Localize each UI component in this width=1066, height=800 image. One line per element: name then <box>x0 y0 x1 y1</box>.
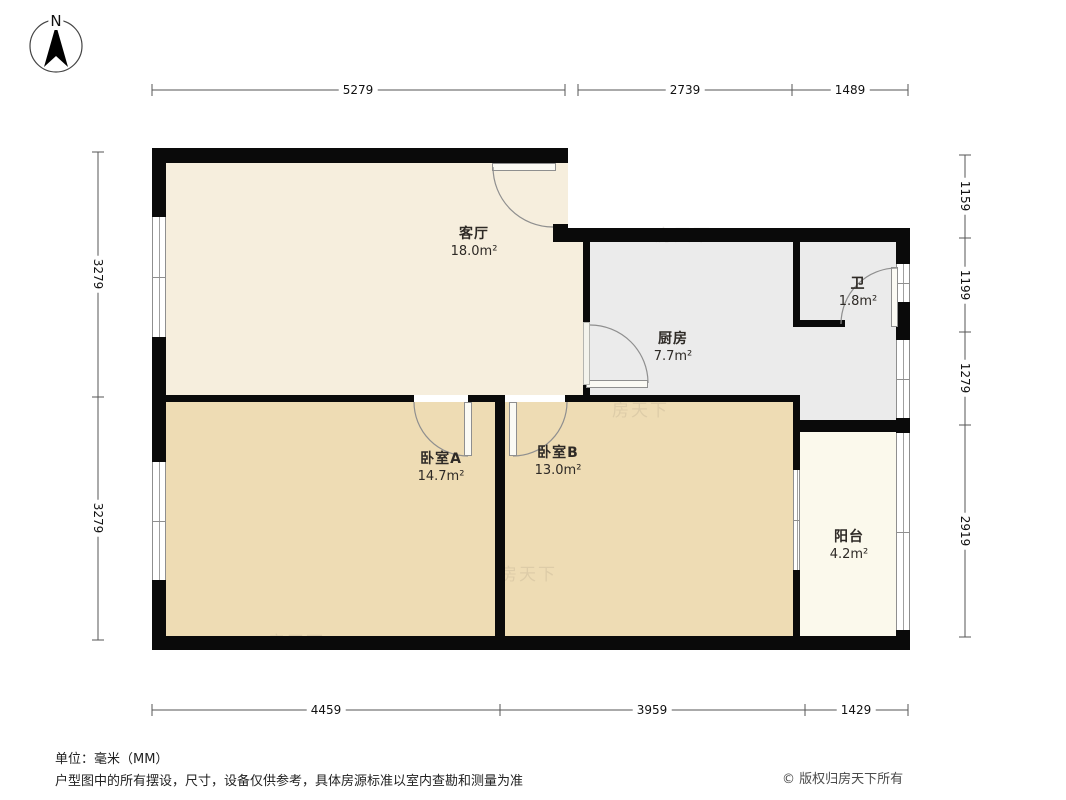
bath-door-leaf <box>891 267 898 327</box>
copyright-note: © 版权归房天下所有 <box>782 768 903 787</box>
wall-bottom <box>152 636 910 650</box>
wall-living-bedrooms-3 <box>565 395 798 402</box>
north-arrow-icon <box>44 25 68 67</box>
wall-bedroom-divider <box>495 395 505 636</box>
room-name: 卧室B <box>535 445 582 463</box>
kitchen-floor <box>590 242 896 402</box>
wall-top <box>152 148 568 163</box>
room-name: 厨房 <box>654 331 693 349</box>
room-area: 14.7m² <box>418 469 465 485</box>
room-name: 卫 <box>839 276 878 294</box>
wall-balcony-left-a <box>793 395 800 470</box>
bedroom-a-floor <box>166 402 495 636</box>
dim-right-3: 1279 <box>958 360 972 397</box>
dim-bottom-2: 3959 <box>633 703 672 717</box>
wall-balcony-left-b <box>793 570 800 637</box>
window-bedroomb-balcony <box>793 470 800 570</box>
room-area: 1.8m² <box>839 294 878 310</box>
room-area: 4.2m² <box>830 547 869 563</box>
room-name: 阳台 <box>830 529 869 547</box>
wall-balcony-top <box>793 420 910 432</box>
entrance-door-leaf <box>492 163 556 171</box>
compass-north-label: N <box>48 12 63 30</box>
bedroom-b-floor <box>505 402 793 636</box>
dim-right-2: 1199 <box>958 267 972 304</box>
room-label-bedroom-b: 卧室B 13.0m² <box>535 445 582 479</box>
window-kitchen <box>896 340 910 418</box>
room-label-kitchen: 厨房 7.7m² <box>654 331 693 365</box>
floorplan-canvas: 房天下 房天下 房天下 房天下 <box>0 0 1066 800</box>
dim-bottom-3: 1429 <box>837 703 876 717</box>
room-area: 18.0m² <box>451 244 498 260</box>
window-left-lower <box>152 462 166 580</box>
room-label-balcony: 阳台 4.2m² <box>830 529 869 563</box>
dim-right-1: 1159 <box>958 178 972 215</box>
kitchen-door-jamb <box>583 322 590 385</box>
room-label-bath: 卫 1.8m² <box>839 276 878 310</box>
room-label-bedroom-a: 卧室A 14.7m² <box>418 451 465 485</box>
dim-left-2: 3279 <box>91 500 105 537</box>
wall-living-bedrooms-1 <box>166 395 414 402</box>
kitchen-floor-lower <box>793 402 896 420</box>
wall-bath-bottom <box>793 320 845 327</box>
dim-top-2: 2739 <box>666 83 705 97</box>
room-name: 卧室A <box>418 451 465 469</box>
bedroom-a-door-leaf <box>464 402 472 456</box>
kitchen-door-leaf <box>586 380 648 388</box>
watermark: 房天下 <box>500 560 557 585</box>
wall-kitchen-top <box>553 228 910 242</box>
wall-bath-left <box>793 242 800 327</box>
room-area: 7.7m² <box>654 349 693 365</box>
outside-area <box>568 140 910 228</box>
dim-top-1: 5279 <box>339 83 378 97</box>
room-name: 客厅 <box>451 226 498 244</box>
wall-entry-stub <box>553 224 568 242</box>
dim-bottom-1: 4459 <box>307 703 346 717</box>
disclaimer-note: 户型图中的所有摆设，尺寸，设备仅供参考，具体房源标准以室内查勘和测量为准 <box>55 770 523 789</box>
room-area: 13.0m² <box>535 463 582 479</box>
wall-kitchen-divider <box>583 242 590 322</box>
room-label-living: 客厅 18.0m² <box>451 226 498 260</box>
window-balcony-glazing <box>896 433 910 630</box>
unit-note: 单位：毫米（MM） <box>55 748 168 767</box>
window-bath <box>896 264 910 302</box>
bedroom-b-door-leaf <box>509 402 517 456</box>
window-left-upper <box>152 217 166 337</box>
dim-right-4: 2919 <box>958 513 972 550</box>
dim-left-1: 3279 <box>91 256 105 293</box>
dim-top-3: 1489 <box>831 83 870 97</box>
living-room-floor <box>166 163 583 395</box>
